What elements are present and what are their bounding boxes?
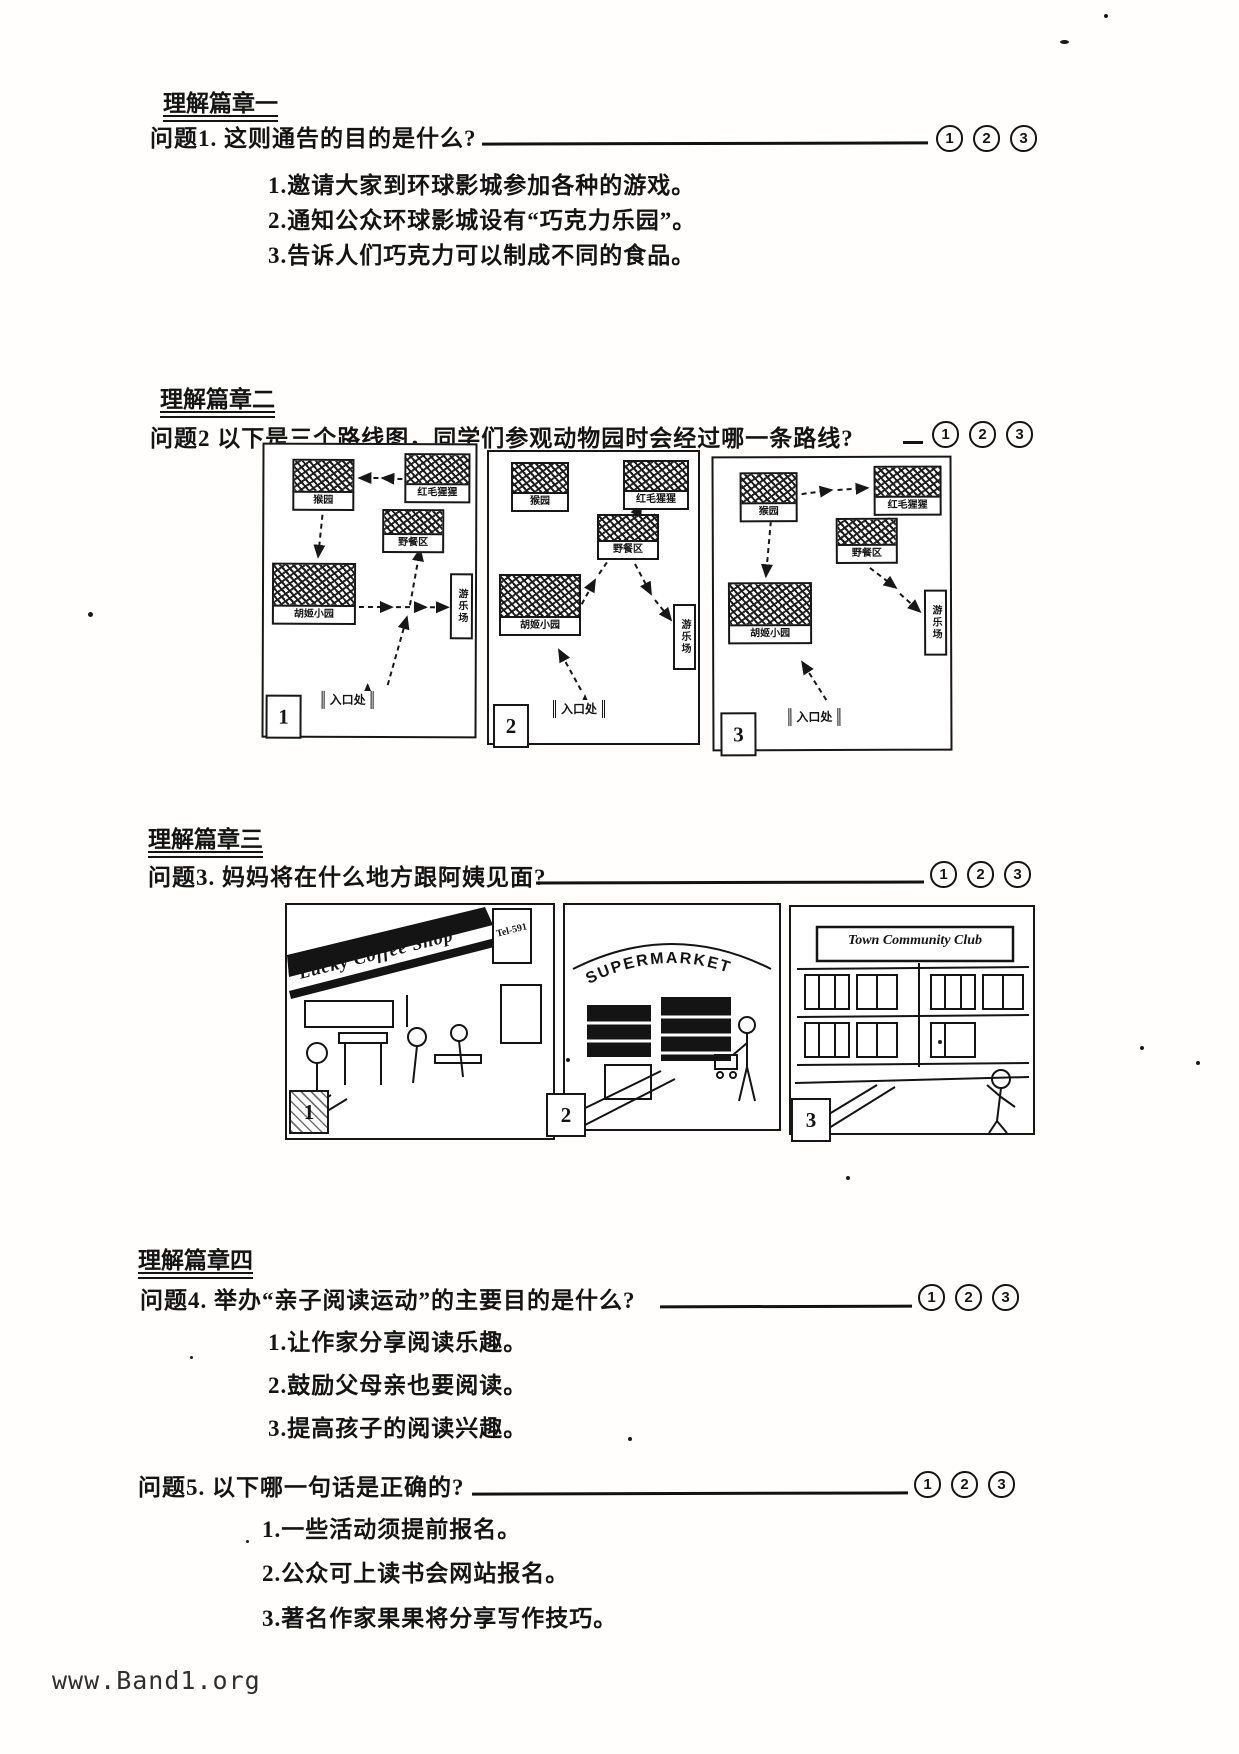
map-node-picture (625, 462, 687, 492)
map-node-orchid-garden: 胡姬小园 (272, 563, 356, 625)
section-heading-4: 理解篇章四 (138, 1241, 253, 1279)
choice-markers-q2: 1 2 3 (932, 421, 1033, 448)
choice-circle-3: 3 (1010, 125, 1037, 152)
answer-line-q4 (660, 1282, 912, 1309)
answer-line-q3 (536, 857, 924, 884)
map-number-tag: 1 (265, 695, 301, 739)
map-node-label: 野餐区 (384, 535, 442, 551)
scan-speck (246, 1540, 249, 1543)
map-node-label: 野餐区 (838, 546, 896, 562)
q1-option-3: 3.告诉人们巧克力可以制成不同的食品。 (268, 236, 695, 270)
choice-circle-2: 2 (955, 1284, 982, 1311)
map-node-picture (513, 464, 567, 494)
map-node-picture (730, 584, 810, 626)
q5-option-3: 3.著名作家果果将分享写作技巧。 (262, 1599, 617, 1633)
map-node-orchid-garden: 胡姬小园 (728, 582, 812, 644)
choice-circle-3: 3 (1004, 861, 1031, 888)
q1-option-2: 2.通知公众环球影城设有“巧克力乐园”。 (268, 201, 696, 235)
map-node-picture (384, 511, 442, 535)
supermarket-drawing: SUPERMARKET (565, 905, 779, 1129)
scan-speck (1196, 1061, 1200, 1065)
scene-supermarket: SUPERMARKET (563, 903, 781, 1131)
choice-circle-3: 3 (988, 1471, 1015, 1498)
choice-markers-q3: 1 2 3 (930, 861, 1031, 888)
map-node-picnic-area: 野餐区 (382, 509, 444, 553)
scan-speck (1140, 1046, 1144, 1050)
map-node-picture (742, 474, 796, 504)
scene-number-tag-2: 2 (546, 1093, 586, 1137)
community-club-sign-text: Town Community Club (819, 933, 1011, 949)
map-node-label: 胡姬小园 (501, 618, 579, 634)
map-node-picture (406, 455, 468, 485)
q1-option-1: 1.邀请大家到环球影城参加各种的游戏。 (268, 166, 695, 200)
map-node-label: 红毛猩猩 (406, 485, 468, 501)
map-entrance-label: 入口处 (322, 691, 374, 709)
choice-circle-2: 2 (967, 861, 994, 888)
map-node-label: 红毛猩猩 (625, 492, 687, 508)
map-node-playground: 游乐场 (924, 590, 947, 656)
route-map-2: 猴园 红毛猩猩 野餐区 胡姬小园 游乐场 入口处 2 (487, 450, 700, 745)
question-2-text: 问题2 以下是三个路线图，同学们参观动物园时会经过哪一条路线? (150, 419, 854, 453)
map-node-picnic-area: 野餐区 (836, 518, 898, 564)
map-node-picnic-area: 野餐区 (597, 514, 659, 560)
map-node-label: 猴园 (742, 504, 796, 520)
map-node-monkey-garden: 猴园 (511, 462, 569, 512)
map-node-orchid-garden: 胡姬小园 (499, 574, 581, 636)
map-entrance-label: 入口处 (788, 708, 840, 726)
q5-option-2: 2.公众可上读书会网站报名。 (262, 1554, 569, 1588)
map-node-label: 胡姬小园 (274, 607, 354, 623)
map-node-picture (876, 468, 940, 498)
choice-circle-3: 3 (992, 1284, 1019, 1311)
choice-circle-1: 1 (932, 421, 959, 448)
q5-option-1: 1.一些活动须提前报名。 (262, 1510, 521, 1544)
map-number-tag: 2 (493, 704, 529, 748)
scan-speck (1060, 40, 1069, 44)
map-node-picture (294, 461, 352, 493)
map-node-monkey-garden: 猴园 (740, 472, 798, 522)
map-node-orangutan: 红毛猩猩 (404, 453, 470, 503)
scene-number-tag-1: 1 (289, 1090, 329, 1134)
question-5-text: 问题5. 以下哪一句话是正确的? (138, 1468, 465, 1502)
choice-circle-3: 3 (1006, 421, 1033, 448)
map-node-playground: 游乐场 (450, 573, 473, 639)
route-map-1: 猴园 红毛猩猩 野餐区 胡姬小园 游乐场 入口处 1 (261, 443, 477, 739)
choice-markers-q4: 1 2 3 (918, 1284, 1019, 1311)
section-heading-1: 理解篇章一 (163, 84, 278, 122)
section-heading-2: 理解篇章二 (160, 380, 275, 418)
q4-option-2: 2.鼓励父母亲也要阅读。 (268, 1366, 527, 1400)
scanned-exam-page: 理解篇章一 问题1. 这则通告的目的是什么? 1 2 3 1.邀请大家到环球影城… (0, 0, 1239, 1754)
choice-circle-1: 1 (918, 1284, 945, 1311)
map-node-label: 猴园 (513, 494, 567, 510)
choice-circle-1: 1 (936, 125, 963, 152)
map-node-picture (274, 565, 354, 607)
scan-speck (846, 1176, 850, 1180)
choice-markers-q5: 1 2 3 (914, 1471, 1015, 1498)
map-node-label: 红毛猩猩 (876, 498, 940, 514)
map-node-orangutan: 红毛猩猩 (874, 466, 942, 516)
map-node-picture (501, 576, 579, 618)
question-3-text: 问题3. 妈妈将在什么地方跟阿姨见面? (148, 858, 547, 892)
map-node-picture (599, 516, 657, 542)
route-map-3: 猴园 红毛猩猩 野餐区 胡姬小园 游乐场 入口处 3 (711, 456, 952, 752)
choice-circle-2: 2 (973, 125, 1000, 152)
map-node-label: 胡姬小园 (730, 626, 810, 642)
section-heading-3: 理解篇章三 (148, 820, 263, 858)
scan-speck (938, 1040, 942, 1044)
choice-circle-2: 2 (969, 421, 996, 448)
map-node-orangutan: 红毛猩猩 (623, 460, 689, 510)
choice-circle-2: 2 (951, 1471, 978, 1498)
map-node-label: 野餐区 (599, 542, 657, 558)
choice-circle-1: 1 (930, 861, 957, 888)
map-node-label: 猴园 (294, 493, 352, 509)
map-node-picture (838, 520, 896, 546)
choice-markers-q1: 1 2 3 (936, 125, 1037, 152)
q4-option-3: 3.提高孩子的阅读兴趣。 (268, 1409, 527, 1443)
answer-line-q1 (482, 119, 928, 145)
map-entrance-label: 入口处 (553, 700, 605, 718)
scan-speck (88, 612, 93, 617)
choice-circle-1: 1 (914, 1471, 941, 1498)
q4-option-1: 1.让作家分享阅读乐趣。 (268, 1323, 527, 1357)
map-node-playground: 游乐场 (673, 604, 696, 670)
map-node-monkey-garden: 猴园 (292, 459, 354, 511)
answer-line-q2 (903, 422, 923, 444)
scan-speck (1104, 14, 1108, 18)
website-watermark: www.Band1.org (52, 1666, 261, 1695)
scene-number-tag-3: 3 (791, 1098, 831, 1142)
scan-speck (566, 1058, 570, 1062)
scan-speck (628, 1437, 632, 1441)
answer-line-q5 (472, 1468, 908, 1495)
scan-speck (190, 1356, 193, 1359)
question-4-text: 问题4. 举办“亲子阅读运动”的主要目的是什么? (140, 1281, 636, 1315)
question-1-text: 问题1. 这则通告的目的是什么? (150, 119, 477, 153)
map-number-tag: 3 (720, 712, 756, 756)
